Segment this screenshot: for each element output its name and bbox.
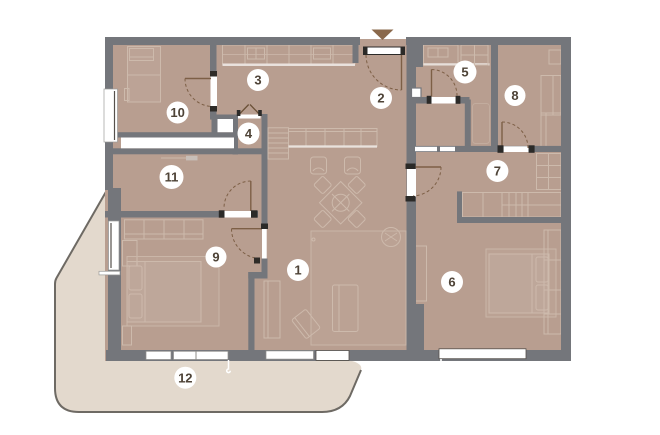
svg-text:10: 10 — [170, 105, 184, 120]
svg-text:7: 7 — [494, 164, 501, 179]
svg-text:12: 12 — [178, 370, 192, 385]
svg-text:1: 1 — [294, 263, 301, 278]
svg-text:8: 8 — [511, 88, 518, 103]
svg-text:2: 2 — [377, 91, 384, 106]
svg-text:5: 5 — [461, 65, 468, 80]
svg-text:6: 6 — [448, 275, 455, 290]
svg-text:11: 11 — [165, 170, 179, 185]
svg-text:4: 4 — [245, 126, 253, 141]
svg-text:9: 9 — [212, 250, 219, 265]
svg-text:3: 3 — [254, 73, 261, 88]
